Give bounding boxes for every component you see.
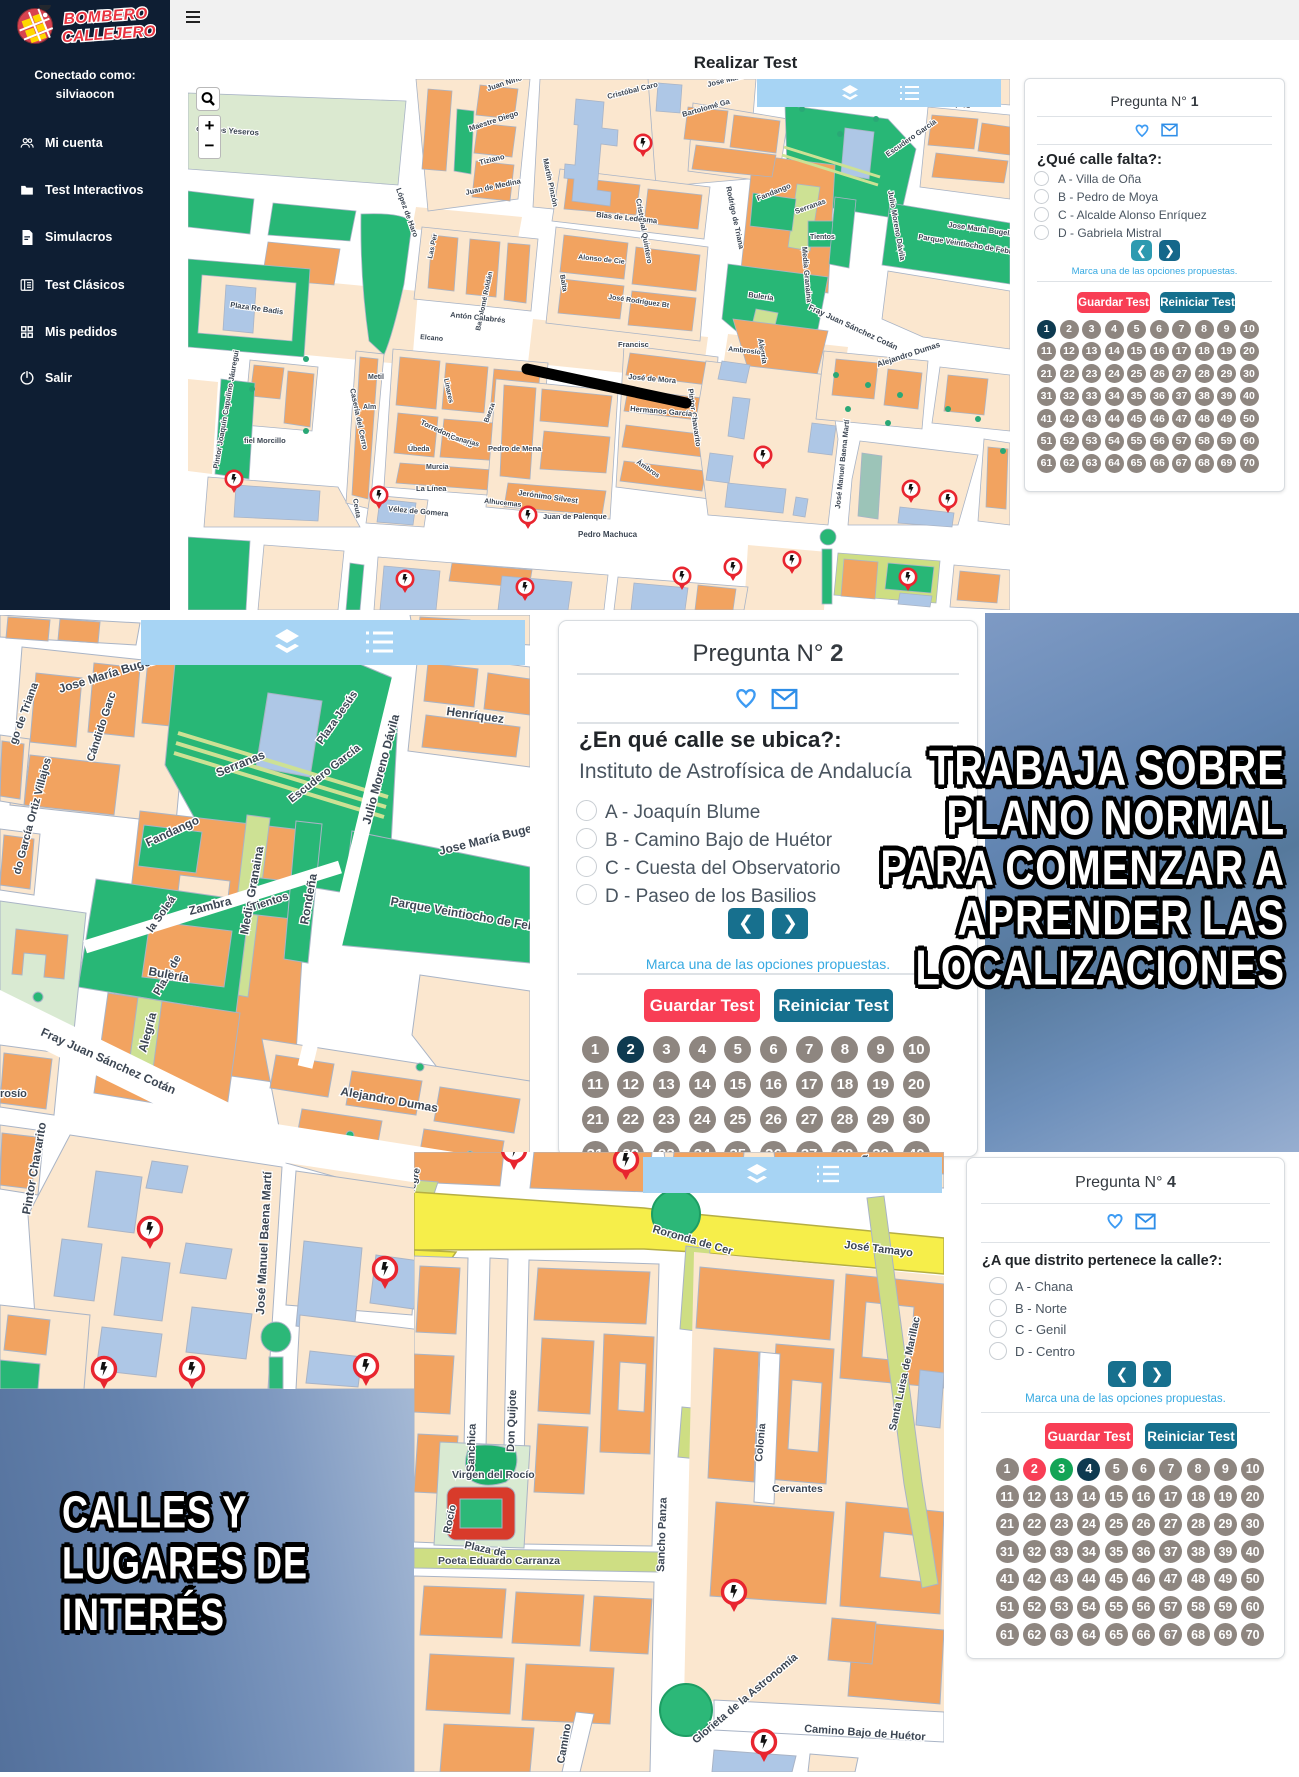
- svg-text:La Línea: La Línea: [416, 484, 447, 493]
- svg-text:Pedro Machuca: Pedro Machuca: [578, 530, 638, 539]
- svg-text:Francisc: Francisc: [618, 340, 649, 349]
- svg-text:rosío: rosío: [0, 1088, 27, 1100]
- svg-text:Pedro de Mena: Pedro de Mena: [488, 444, 542, 453]
- svg-text:Tientos: Tientos: [810, 234, 835, 241]
- svg-text:Alm: Alm: [363, 404, 376, 411]
- svg-text:Don Quijote: Don Quijote: [505, 1389, 519, 1452]
- svg-text:Virgen del Rocío: Virgen del Rocío: [452, 1469, 535, 1481]
- svg-text:Cervantes: Cervantes: [772, 1483, 823, 1495]
- svg-text:Murcia: Murcia: [426, 464, 449, 471]
- svg-text:fiel Morcillo: fiel Morcillo: [244, 436, 286, 445]
- svg-text:Poeta Eduardo Carranza: Poeta Eduardo Carranza: [438, 1555, 560, 1567]
- svg-text:Úbeda: Úbeda: [408, 444, 430, 453]
- svg-text:Sanchica: Sanchica: [465, 1423, 479, 1473]
- svg-text:Juan de Palenque: Juan de Palenque: [543, 512, 607, 521]
- svg-text:Metil: Metil: [368, 374, 384, 381]
